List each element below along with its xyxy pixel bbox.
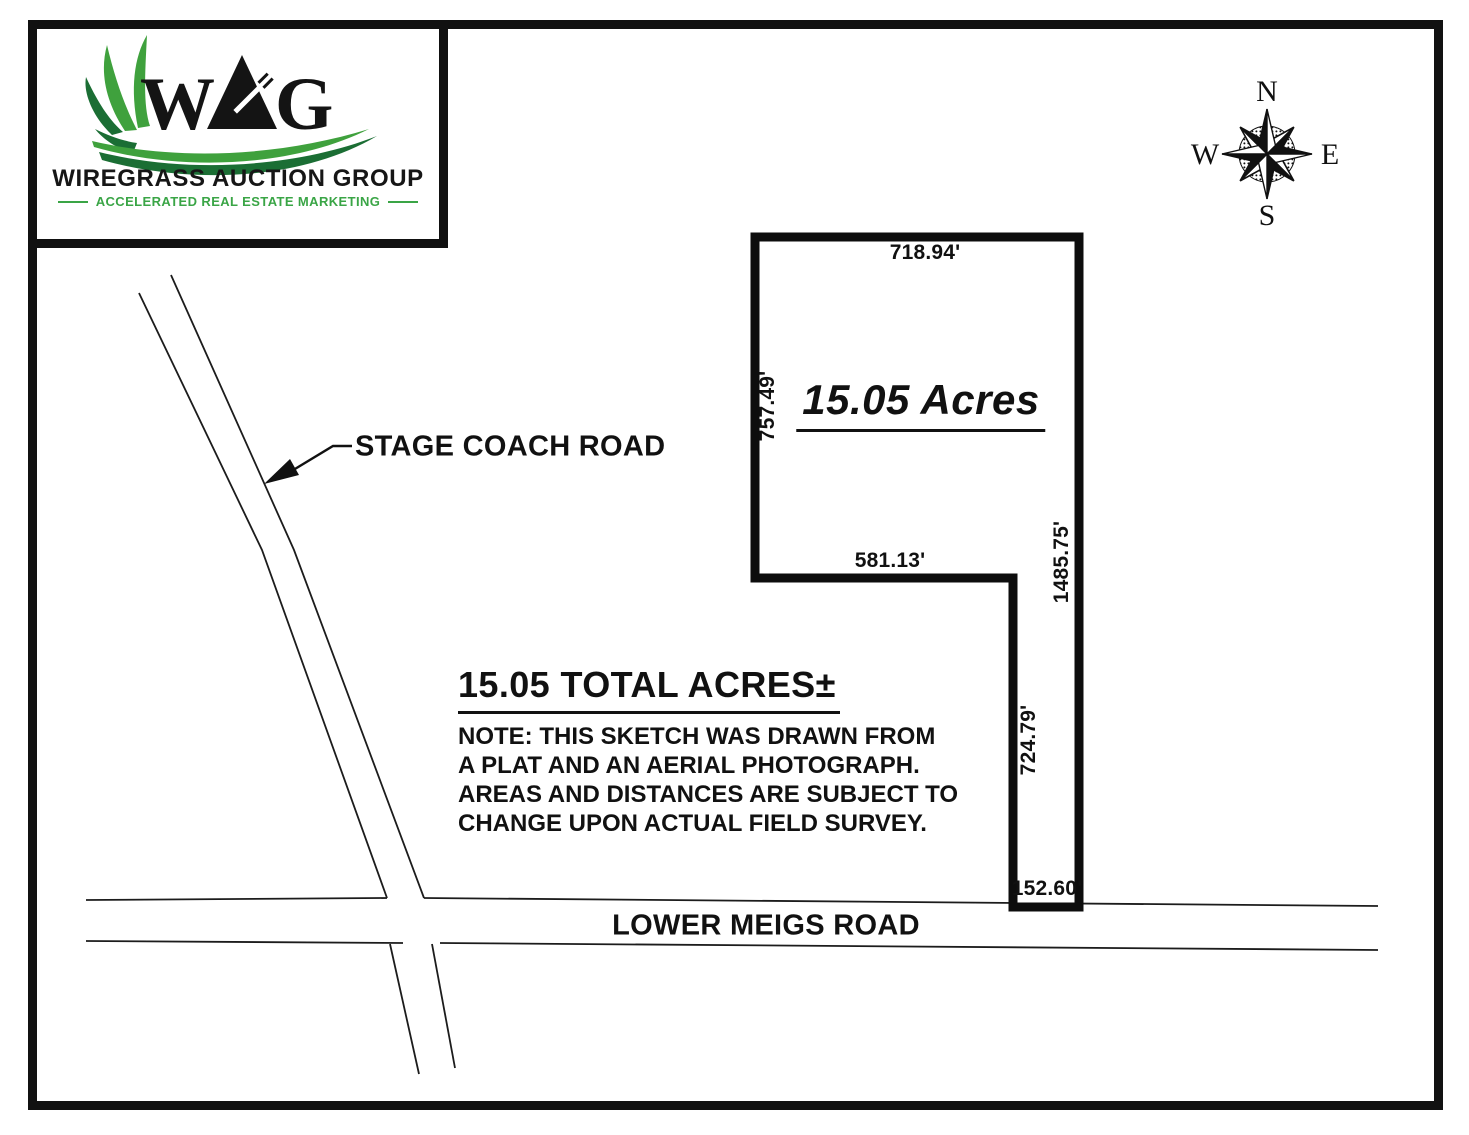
logo-letter-a bbox=[207, 55, 279, 129]
dim-right-1485: 1485.75' bbox=[1050, 521, 1074, 604]
logo-letter-w: W bbox=[140, 63, 215, 146]
acreage-summary: 15.05 TOTAL ACRES± NOTE: THIS SKETCH WAS… bbox=[458, 664, 958, 838]
dim-strip-724: 724.79' bbox=[1017, 705, 1041, 776]
note-line-1: NOTE: THIS SKETCH WAS DRAWN FROM bbox=[458, 722, 958, 751]
survey-sketch-page: W G WIREGRASS AUCTION GROUP ACCELERATED … bbox=[0, 0, 1469, 1135]
lower-meigs-road-label: LOWER MEIGS ROAD bbox=[612, 910, 920, 943]
tagline-dash-left bbox=[58, 201, 88, 203]
dim-inner-581: 581.13' bbox=[855, 549, 926, 573]
compass-north-label: N bbox=[1256, 75, 1278, 109]
dim-top-718: 718.94' bbox=[890, 241, 961, 265]
logo-box: W G WIREGRASS AUCTION GROUP ACCELERATED … bbox=[28, 20, 448, 248]
logo-letter-g: G bbox=[275, 63, 333, 146]
note-line-2: A PLAT AND AN AERIAL PHOTOGRAPH. bbox=[458, 751, 958, 780]
logo-tagline: ACCELERATED REAL ESTATE MARKETING bbox=[37, 194, 439, 209]
compass-south-label: S bbox=[1259, 199, 1276, 233]
logo-tagline-text: ACCELERATED REAL ESTATE MARKETING bbox=[96, 194, 381, 209]
compass-east-label: E bbox=[1321, 138, 1339, 172]
survey-note: NOTE: THIS SKETCH WAS DRAWN FROM A PLAT … bbox=[458, 722, 958, 838]
stage-coach-road-label: STAGE COACH ROAD bbox=[355, 431, 665, 464]
compass-west-label: W bbox=[1191, 138, 1219, 172]
note-line-4: CHANGE UPON ACTUAL FIELD SURVEY. bbox=[458, 809, 958, 838]
parcel-area-label: 15.05 Acres bbox=[796, 376, 1045, 432]
dim-bottom-152: 152.60' bbox=[1012, 877, 1083, 901]
note-line-3: AREAS AND DISTANCES ARE SUBJECT TO bbox=[458, 780, 958, 809]
total-acres-title: 15.05 TOTAL ACRES± bbox=[458, 664, 840, 714]
tagline-dash-right bbox=[388, 201, 418, 203]
logo-company-name: WIREGRASS AUCTION GROUP bbox=[37, 165, 439, 193]
dim-left-757: 757.49' bbox=[756, 371, 780, 442]
